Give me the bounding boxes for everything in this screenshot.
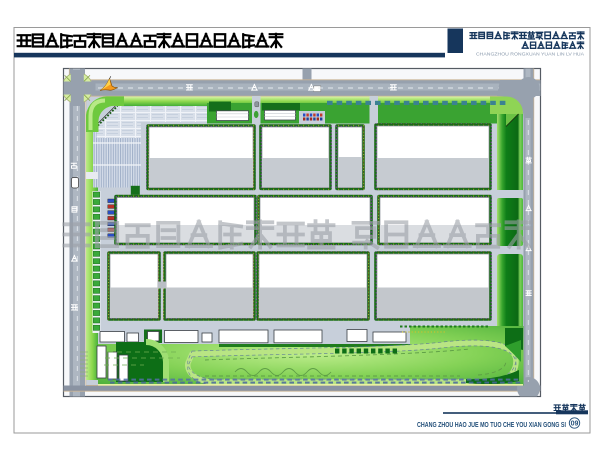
svg-text:CHANG ZHOU HAO JUE MO TUO CHE: CHANG ZHOU HAO JUE MO TUO CHE YOU XIAN G… bbox=[417, 420, 566, 429]
svg-text:CHANGZHOU RONGXUAN YUAN LIN LV: CHANGZHOU RONGXUAN YUAN LIN LV HUA bbox=[476, 51, 585, 56]
svg-text:09: 09 bbox=[571, 421, 579, 428]
